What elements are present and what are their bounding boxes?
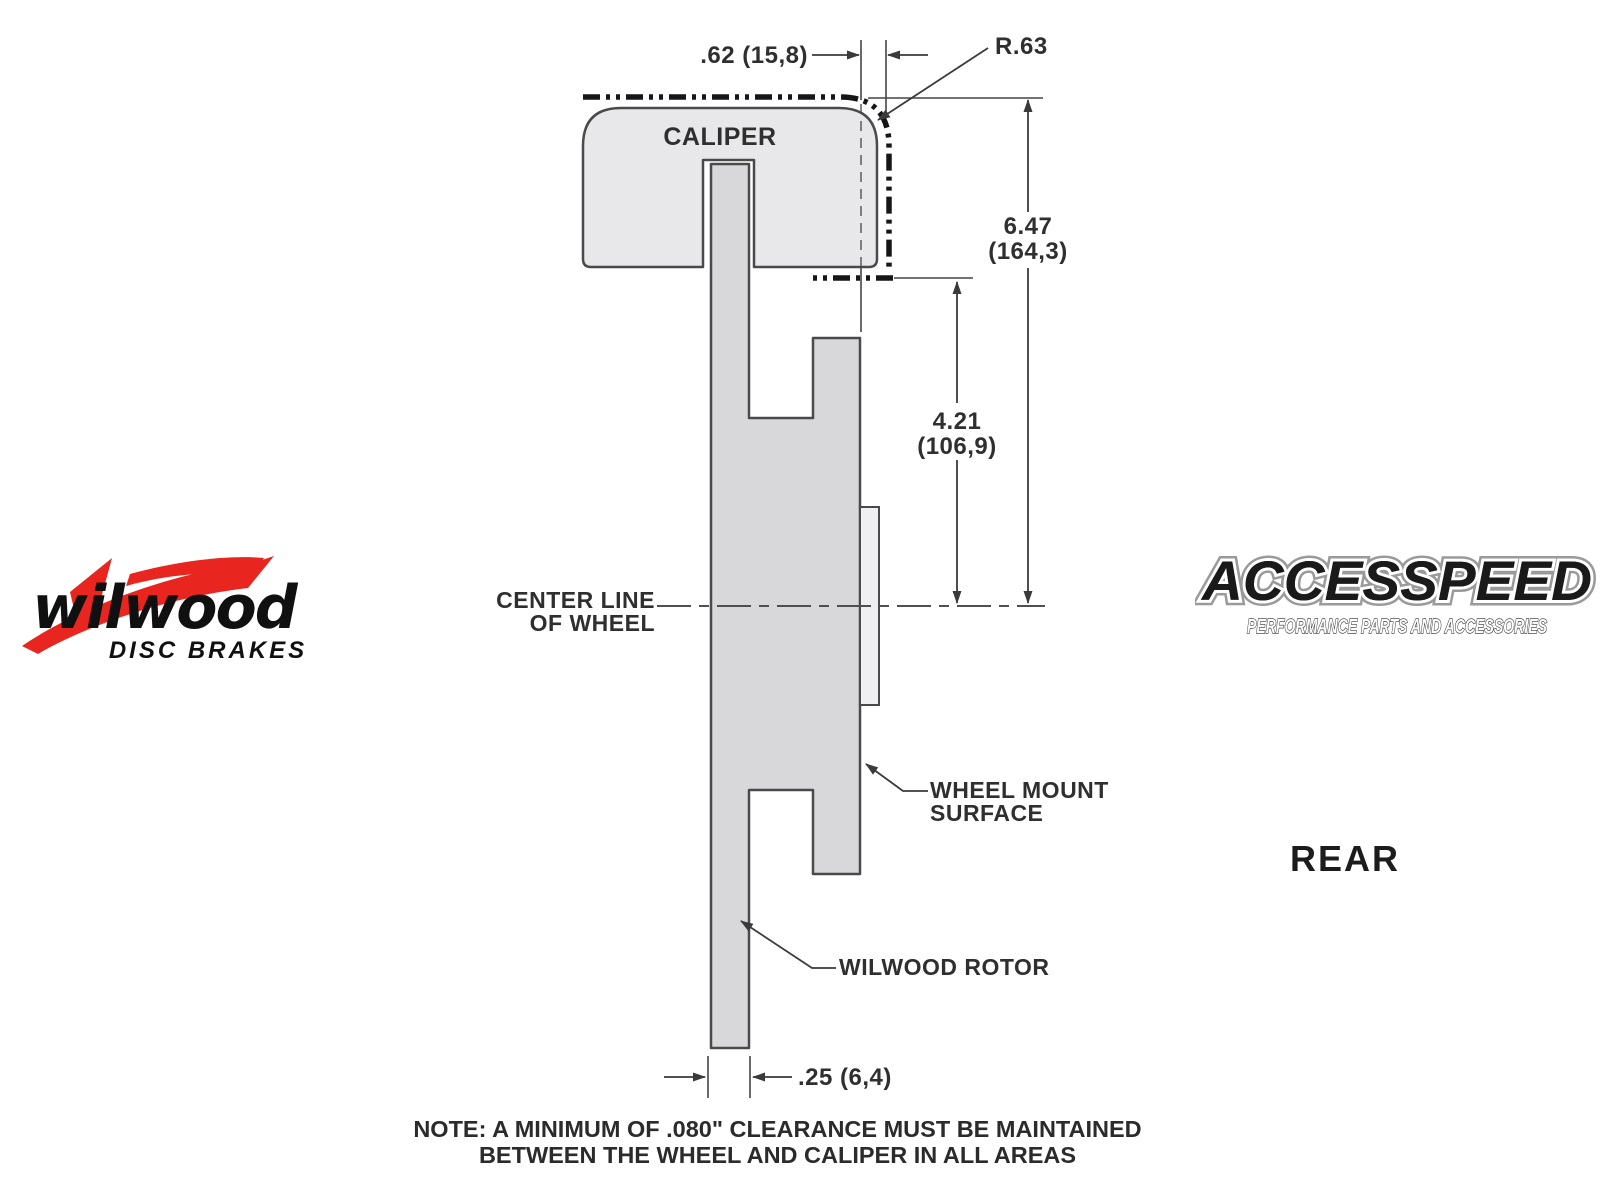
dim-mount-height: 4.21 (106,9) [891,409,1023,459]
wheel-mount-leader [866,764,928,791]
centerline-label: CENTER LINE OF WHEEL [455,589,655,635]
centerline-label-line1: CENTER LINE [455,589,655,612]
clearance-note-line2: BETWEEN THE WHEEL AND CALIPER IN ALL ARE… [395,1142,1160,1168]
dim-mount-height-mm: (106,9) [891,434,1023,459]
accesspeed-wordmark: ACCESSPEED [1200,549,1592,612]
wilwood-logo-art: wilwood DISC BRAKES [12,528,322,668]
accesspeed-tagline: PERFORMANCE PARTS AND ACCESSORIES [1247,616,1547,638]
view-label-rear: REAR [1265,838,1425,880]
wheel-mount-label-line1: WHEEL MOUNT [930,779,1109,802]
radius-leader [878,48,988,120]
wilwood-logo: wilwood DISC BRAKES [12,528,322,668]
dim-overall-height-mm: (164,3) [962,239,1094,264]
dim-mount-height-in: 4.21 [891,409,1023,434]
clearance-note-line1: NOTE: A MINIMUM OF .080" CLEARANCE MUST … [395,1116,1160,1142]
dim-overall-height: 6.47 (164,3) [962,214,1094,264]
clearance-note: NOTE: A MINIMUM OF .080" CLEARANCE MUST … [395,1116,1160,1168]
caliper-label: CALIPER [650,123,790,152]
technical-drawing-page: CALIPER .62 (15,8) R.63 6.47 (164,3) 4.2… [0,0,1600,1200]
rotor-leader [741,921,836,968]
wilwood-wordmark: wilwood [32,573,298,643]
wilwood-tagline: DISC BRAKES [109,637,307,664]
wilwood-rotor-label: WILWOOD ROTOR [839,956,1050,979]
dim-corner-radius: R.63 [995,33,1048,61]
accesspeed-logo-art: ACCESSPEED ACCESSPEED ACCESSPEED PERFORM… [1195,532,1600,644]
accesspeed-logo: ACCESSPEED ACCESSPEED ACCESSPEED PERFORM… [1195,532,1600,644]
wheel-mount-label-line2: SURFACE [930,802,1109,825]
dim-overall-height-in: 6.47 [962,214,1094,239]
dim-rotor-thickness: .25 (6,4) [798,1064,892,1092]
wheel-mount-surface-label: WHEEL MOUNT SURFACE [930,779,1109,825]
dim-caliper-overhang: .62 (15,8) [690,42,808,70]
centerline-label-line2: OF WHEEL [455,612,655,635]
